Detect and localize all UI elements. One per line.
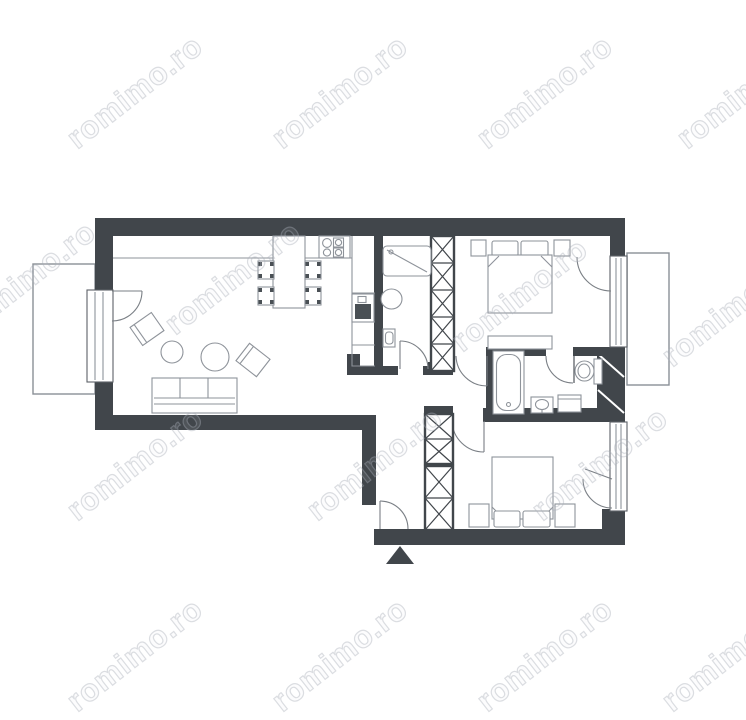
sofa [152, 378, 237, 413]
door-balcony-bedroom2 [583, 469, 612, 508]
window-bedroom2-right [610, 422, 627, 511]
shower-tray [383, 246, 431, 276]
door-entrance [380, 501, 408, 529]
dining-chair [305, 261, 321, 279]
armchair [236, 343, 270, 376]
nightstand [471, 240, 486, 256]
toilet [383, 329, 395, 347]
wall-top [95, 218, 625, 236]
door-bedroom2 [452, 421, 484, 452]
nightstand [554, 240, 570, 256]
door-balcony-living [112, 291, 142, 321]
pillow [494, 511, 520, 527]
coffee-table-large [201, 343, 229, 371]
door-bedroom1 [456, 356, 487, 386]
pillow [523, 511, 550, 527]
bathroom-sink [531, 397, 553, 413]
dining-chair [258, 261, 274, 279]
balcony-left [33, 264, 95, 394]
bathtub [493, 351, 524, 414]
nightstand [469, 504, 489, 527]
bed [492, 457, 553, 519]
door-balcony-bedroom1 [577, 257, 611, 291]
wall-wc-top [573, 347, 611, 356]
door-bathroom [546, 356, 573, 383]
entrance-triangle-icon [386, 546, 414, 564]
shower-room [381, 246, 431, 347]
bed [488, 255, 552, 313]
coffee-table-small [161, 341, 183, 363]
nightstand [555, 504, 575, 527]
wall-right-top [610, 218, 625, 258]
washing-machine [558, 395, 581, 412]
dining-chair [305, 287, 321, 305]
wall-bottom [374, 529, 625, 545]
floor-plan [0, 0, 746, 720]
balcony-right [627, 253, 669, 385]
bedroom-2 [469, 457, 575, 527]
bedroom-1 [471, 240, 570, 349]
pillow [521, 241, 548, 256]
wall-living-bottom [95, 415, 375, 430]
dining-table [273, 236, 305, 308]
washbasin [381, 289, 402, 309]
wall-hall-left [362, 415, 376, 505]
dining-chair [258, 287, 274, 305]
kitchen-sink [352, 294, 374, 322]
pillow [492, 241, 518, 256]
wardrobe-column-lower-a [425, 414, 453, 464]
dresser [488, 336, 552, 349]
window-bedroom1-right [610, 256, 627, 347]
kitchen [113, 236, 375, 366]
wc [575, 359, 602, 384]
floor-plan-canvas: romimo.ro romimo.ro romimo.ro romimo.ro … [0, 0, 746, 720]
door-shower-room [400, 341, 428, 369]
living-room [130, 313, 270, 413]
window-living-left [87, 290, 113, 382]
wall-left-upper [95, 218, 113, 292]
wc-toilet [575, 359, 602, 384]
wardrobe-columns [425, 236, 454, 530]
stove [319, 236, 350, 258]
wall-right-bottom-corner [602, 509, 625, 545]
wardrobe-column-lower-b [425, 466, 453, 530]
wardrobe-column-upper [431, 236, 454, 371]
armchair [130, 313, 164, 346]
